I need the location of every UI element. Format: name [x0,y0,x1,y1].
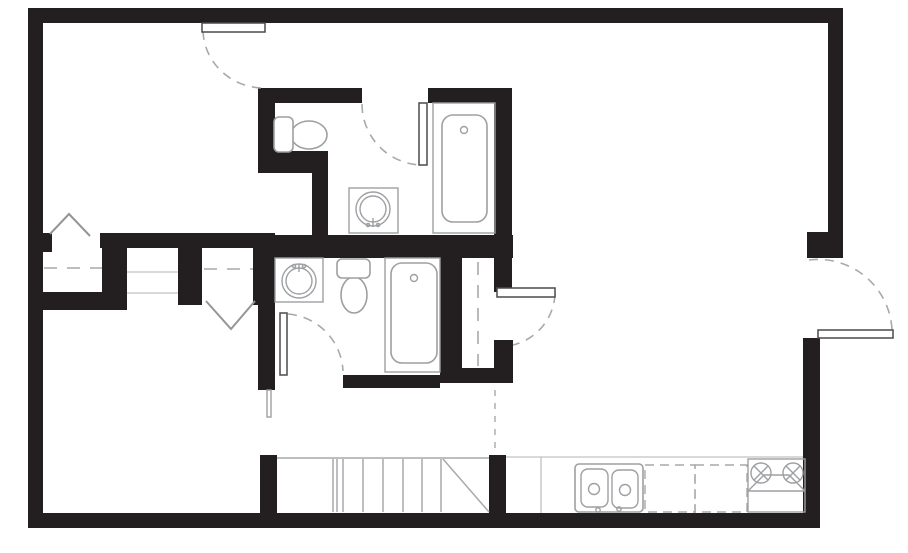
wall-exterior-bottom [28,513,820,528]
wall-exterior-right-upper [828,8,843,258]
wall-middle-right [263,235,513,258]
kitchen-sink-unit [575,464,643,512]
bath1-bathtub [442,115,487,222]
bathroom-lower-fixtures [275,258,440,372]
wall-bath1-left [258,88,275,151]
door-swing-bath2 [288,314,343,371]
wall-bath1-right [494,88,512,292]
bath2-wall-end-cap [267,390,271,417]
bath2-toilet-bowl [341,277,367,313]
bath1-toilet-tank [274,117,293,152]
range-outline [748,459,805,512]
kitchen [506,457,805,513]
door-leaf-bath2 [280,313,287,375]
kitchen-appliance-dashed-1 [645,465,695,512]
closet2-bifold-door [206,301,255,329]
door-leaf-bath1 [419,103,427,165]
stair-diagonal [443,459,489,512]
staircase [277,458,489,512]
wall-bath2-right [440,256,462,383]
door-leaf-pantry [497,288,555,297]
wall-stair-post-right [489,455,506,513]
floor-plan-page [0,0,908,553]
wall-stair-post-left [260,455,277,513]
floor-plan [0,0,908,553]
wall-bath2-bottom [343,375,440,388]
door-swing-right-entry [809,259,892,330]
bath2-sink-faucet-dot-right [302,264,305,267]
bath1-toilet-bowl [291,121,327,149]
wall-right-entry-jamb [807,232,843,258]
wall-bath2-left [258,248,275,390]
door-swing-bath1 [362,104,423,165]
door-swing-pantry [513,294,555,345]
wall-bath1-jog-horizontal [258,151,328,173]
door-swing-top-entry [203,31,263,88]
door-leaf-top-entry [202,23,265,32]
bath2-bathtub [391,263,437,363]
wall-closet1-bottom [43,292,127,310]
wall-closet1-door-stub [43,233,52,252]
wall-exterior-top [28,8,843,23]
closet1-bifold-door [50,214,90,236]
bath2-toilet-tank [337,259,370,278]
bath2-sink-faucet-dot-left [292,264,295,267]
wall-bath1-jog-vertical [312,173,328,237]
door-leaf-right-entry [818,330,893,338]
wall-hall-niche-right [178,233,202,305]
wall-exterior-left [28,8,43,528]
kitchen-appliance-dashed-2 [695,465,747,512]
wall-pantry-right-lower [494,340,513,383]
